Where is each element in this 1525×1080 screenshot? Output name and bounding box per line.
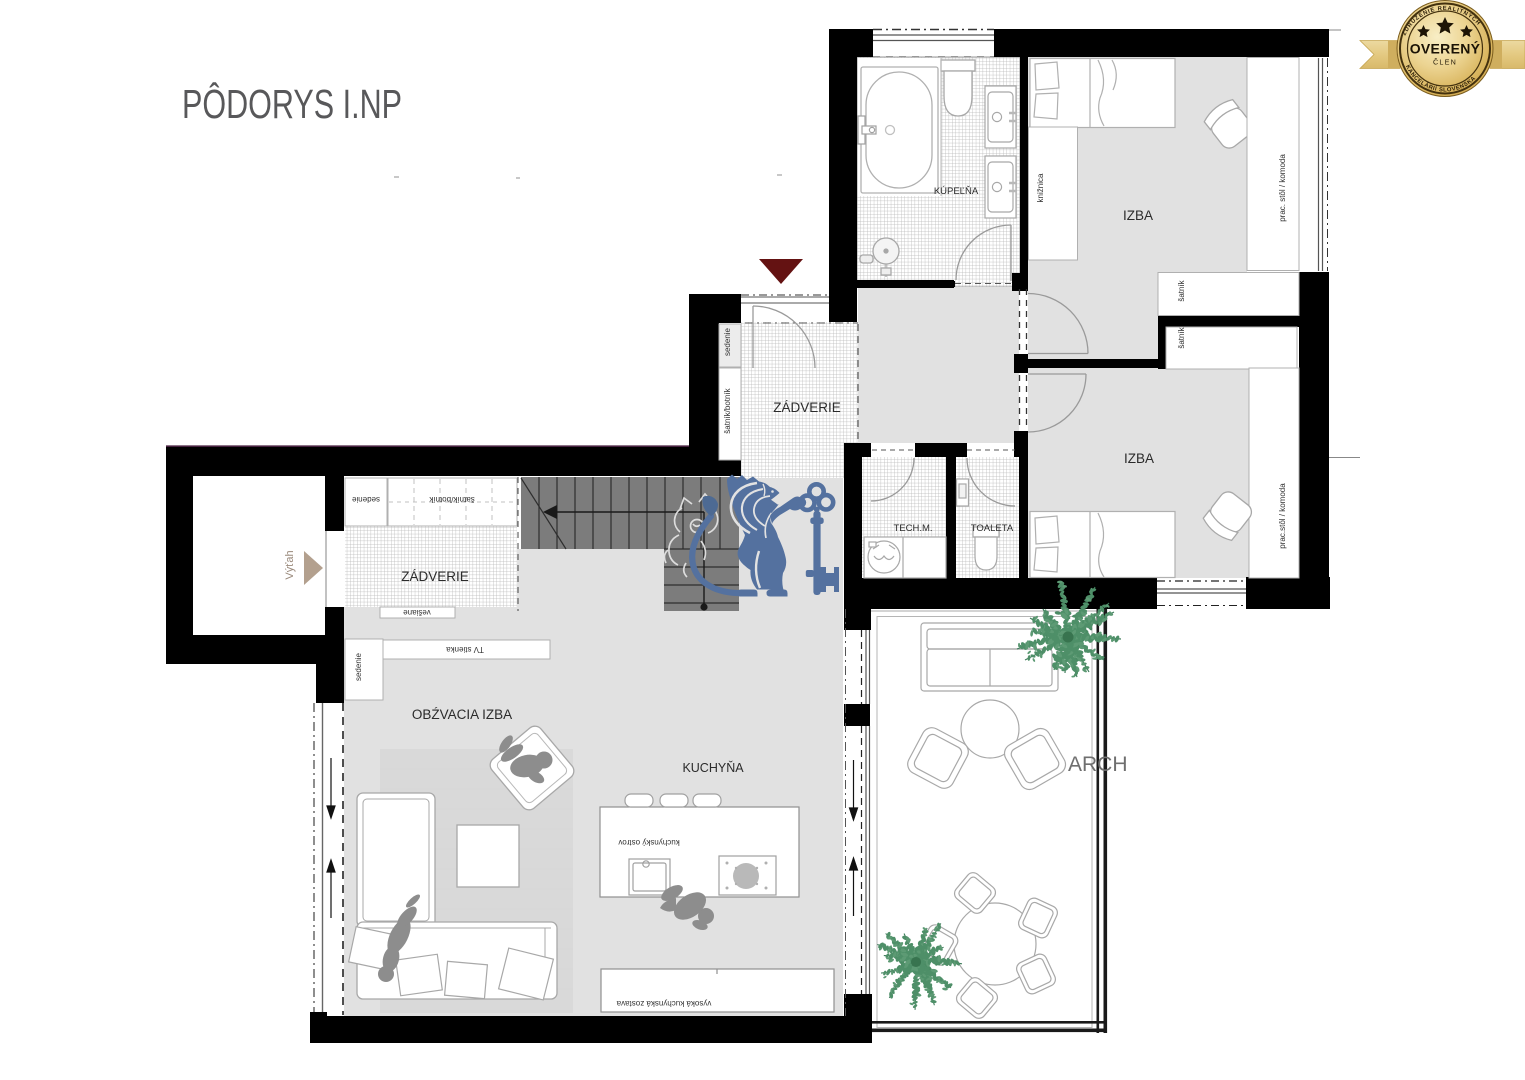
svg-text:šatník/botník: šatník/botník bbox=[723, 387, 732, 433]
svg-text:prac.stôl / komoda: prac.stôl / komoda bbox=[1278, 483, 1287, 549]
svg-text:prac. stôl / komoda: prac. stôl / komoda bbox=[1278, 154, 1287, 222]
svg-text:knižnica: knižnica bbox=[1036, 173, 1045, 202]
svg-text:PÔDORYS I.NP: PÔDORYS I.NP bbox=[182, 81, 402, 127]
svg-text:KÚPEĽŇA: KÚPEĽŇA bbox=[934, 186, 979, 197]
svg-text:ZÁDVERIE: ZÁDVERIE bbox=[401, 569, 469, 584]
svg-text:šatník: šatník bbox=[1177, 279, 1186, 301]
svg-text:TOALETA: TOALETA bbox=[971, 523, 1014, 534]
svg-text:IZBA: IZBA bbox=[1124, 451, 1154, 466]
svg-text:ČLEN: ČLEN bbox=[1433, 58, 1457, 67]
svg-text:šatník: šatník bbox=[1177, 326, 1186, 348]
svg-text:OBŹVACIA IZBA: OBŹVACIA IZBA bbox=[412, 707, 512, 722]
svg-text:Výťah: Výťah bbox=[284, 550, 296, 579]
svg-text:TECH.M.: TECH.M. bbox=[893, 523, 932, 534]
svg-text:ARCH: ARCH bbox=[1068, 753, 1128, 776]
svg-text:vešiane: vešiane bbox=[403, 608, 431, 617]
svg-text:sedenie: sedenie bbox=[723, 327, 732, 356]
svg-text:KUCHYŇA: KUCHYŇA bbox=[682, 760, 744, 775]
svg-text:kuchynský ostrov: kuchynský ostrov bbox=[618, 838, 679, 847]
svg-text:OVERENÝ: OVERENÝ bbox=[1410, 40, 1481, 57]
svg-text:vysoká kuchynská zostava: vysoká kuchynská zostava bbox=[616, 999, 711, 1008]
svg-text:TV stienka: TV stienka bbox=[446, 645, 484, 654]
svg-text:ZÁDVERIE: ZÁDVERIE bbox=[773, 400, 841, 415]
svg-text:IZBA: IZBA bbox=[1123, 208, 1153, 223]
svg-text:šatník/botník: šatník/botník bbox=[428, 495, 474, 504]
svg-text:sedenie: sedenie bbox=[351, 495, 380, 504]
svg-text:sedenie: sedenie bbox=[354, 652, 363, 681]
